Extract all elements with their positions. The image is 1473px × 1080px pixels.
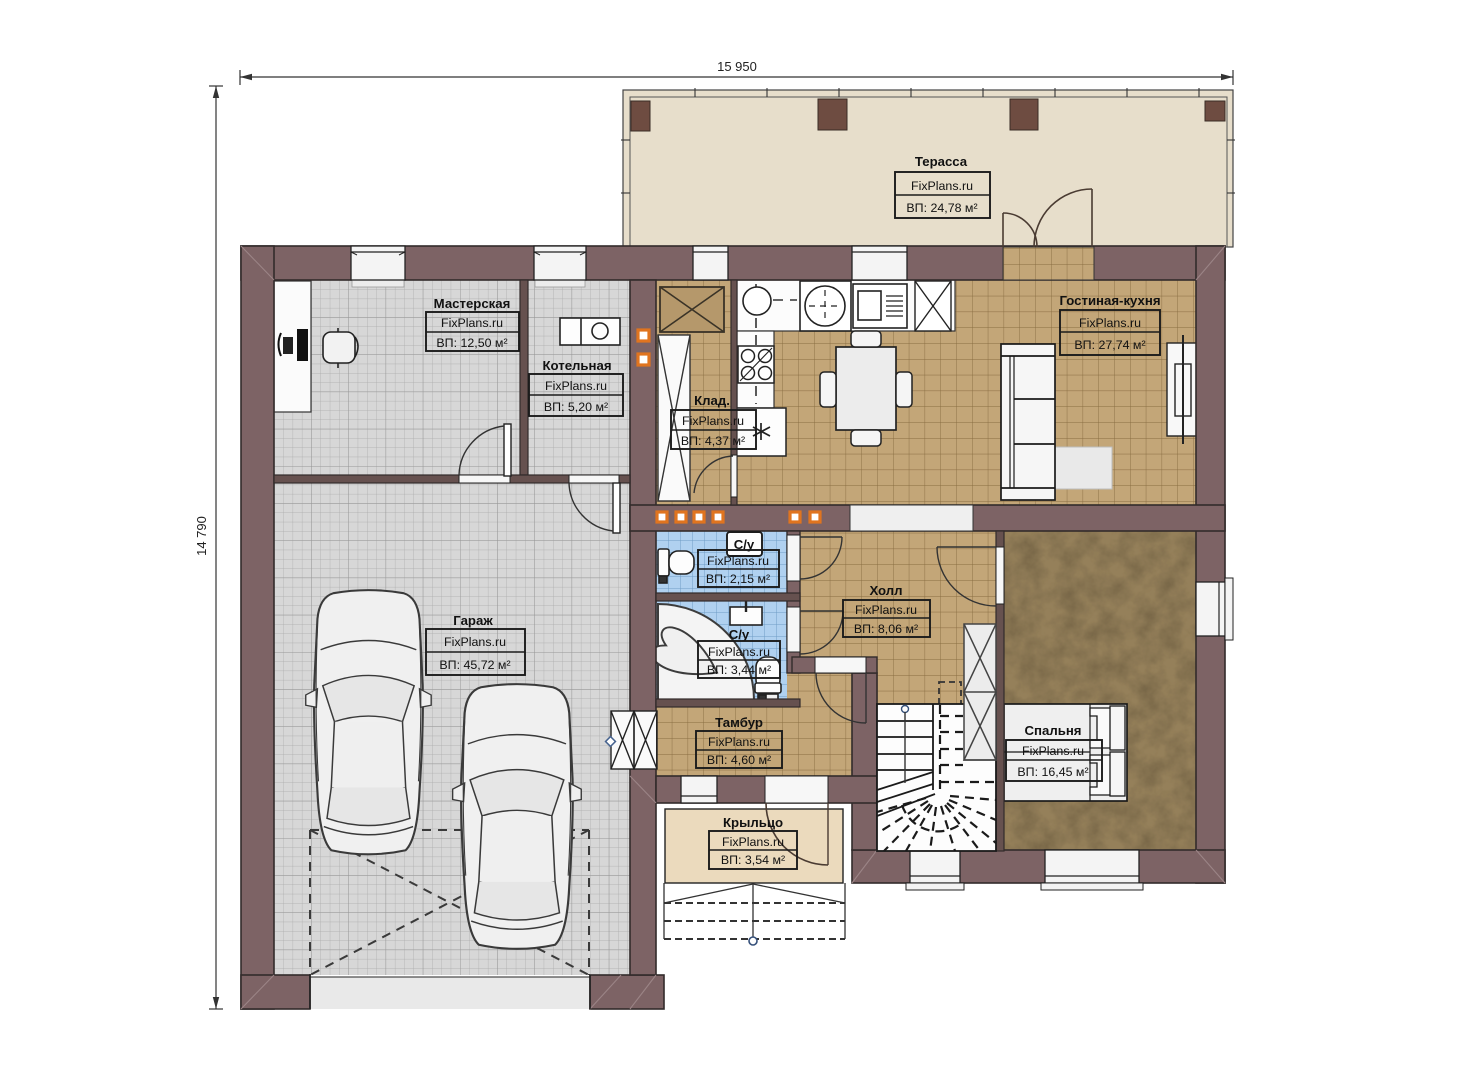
svg-text:С/у: С/у	[729, 627, 750, 642]
svg-text:FixPlans.ru: FixPlans.ru	[682, 414, 744, 428]
svg-text:ВП: 16,45 м²: ВП: 16,45 м²	[1017, 765, 1088, 779]
svg-text:FixPlans.ru: FixPlans.ru	[722, 835, 784, 849]
svg-text:ВП: 5,20 м²: ВП: 5,20 м²	[544, 400, 608, 414]
svg-text:Котельная: Котельная	[542, 358, 611, 373]
svg-text:FixPlans.ru: FixPlans.ru	[545, 379, 607, 393]
svg-text:ВП: 4,37 м²: ВП: 4,37 м²	[681, 434, 745, 448]
svg-text:FixPlans.ru: FixPlans.ru	[444, 635, 506, 649]
svg-text:ВП: 8,06 м²: ВП: 8,06 м²	[854, 622, 918, 636]
svg-text:ВП: 2,15 м²: ВП: 2,15 м²	[706, 572, 770, 586]
svg-text:FixPlans.ru: FixPlans.ru	[707, 554, 769, 568]
svg-text:FixPlans.ru: FixPlans.ru	[1079, 316, 1141, 330]
svg-text:14 790: 14 790	[194, 516, 209, 556]
svg-text:Терасса: Терасса	[915, 154, 968, 169]
svg-text:ВП: 3,44 м²: ВП: 3,44 м²	[707, 663, 771, 677]
svg-text:ВП: 12,50 м²: ВП: 12,50 м²	[436, 336, 507, 350]
svg-text:Спальня: Спальня	[1025, 723, 1082, 738]
svg-text:FixPlans.ru: FixPlans.ru	[1022, 744, 1084, 758]
svg-text:ВП: 27,74 м²: ВП: 27,74 м²	[1074, 338, 1145, 352]
svg-text:ВП: 45,72 м²: ВП: 45,72 м²	[439, 658, 510, 672]
svg-text:Тамбур: Тамбур	[715, 715, 763, 730]
svg-text:FixPlans.ru: FixPlans.ru	[911, 179, 973, 193]
svg-text:Гараж: Гараж	[453, 613, 493, 628]
svg-text:Мастерская: Мастерская	[434, 296, 511, 311]
svg-text:Клад.: Клад.	[694, 393, 730, 408]
svg-text:ВП: 24,78 м²: ВП: 24,78 м²	[906, 201, 977, 215]
svg-text:FixPlans.ru: FixPlans.ru	[441, 316, 503, 330]
svg-text:Гостиная-кухня: Гостиная-кухня	[1059, 293, 1160, 308]
svg-text:ВП: 4,60 м²: ВП: 4,60 м²	[707, 753, 771, 767]
svg-text:Крыльцо: Крыльцо	[723, 815, 783, 830]
svg-text:FixPlans.ru: FixPlans.ru	[708, 735, 770, 749]
svg-text:15 950: 15 950	[717, 59, 757, 74]
svg-text:FixPlans.ru: FixPlans.ru	[708, 645, 770, 659]
svg-text:ВП: 3,54 м²: ВП: 3,54 м²	[721, 853, 785, 867]
svg-text:FixPlans.ru: FixPlans.ru	[855, 603, 917, 617]
svg-text:Холл: Холл	[869, 583, 902, 598]
